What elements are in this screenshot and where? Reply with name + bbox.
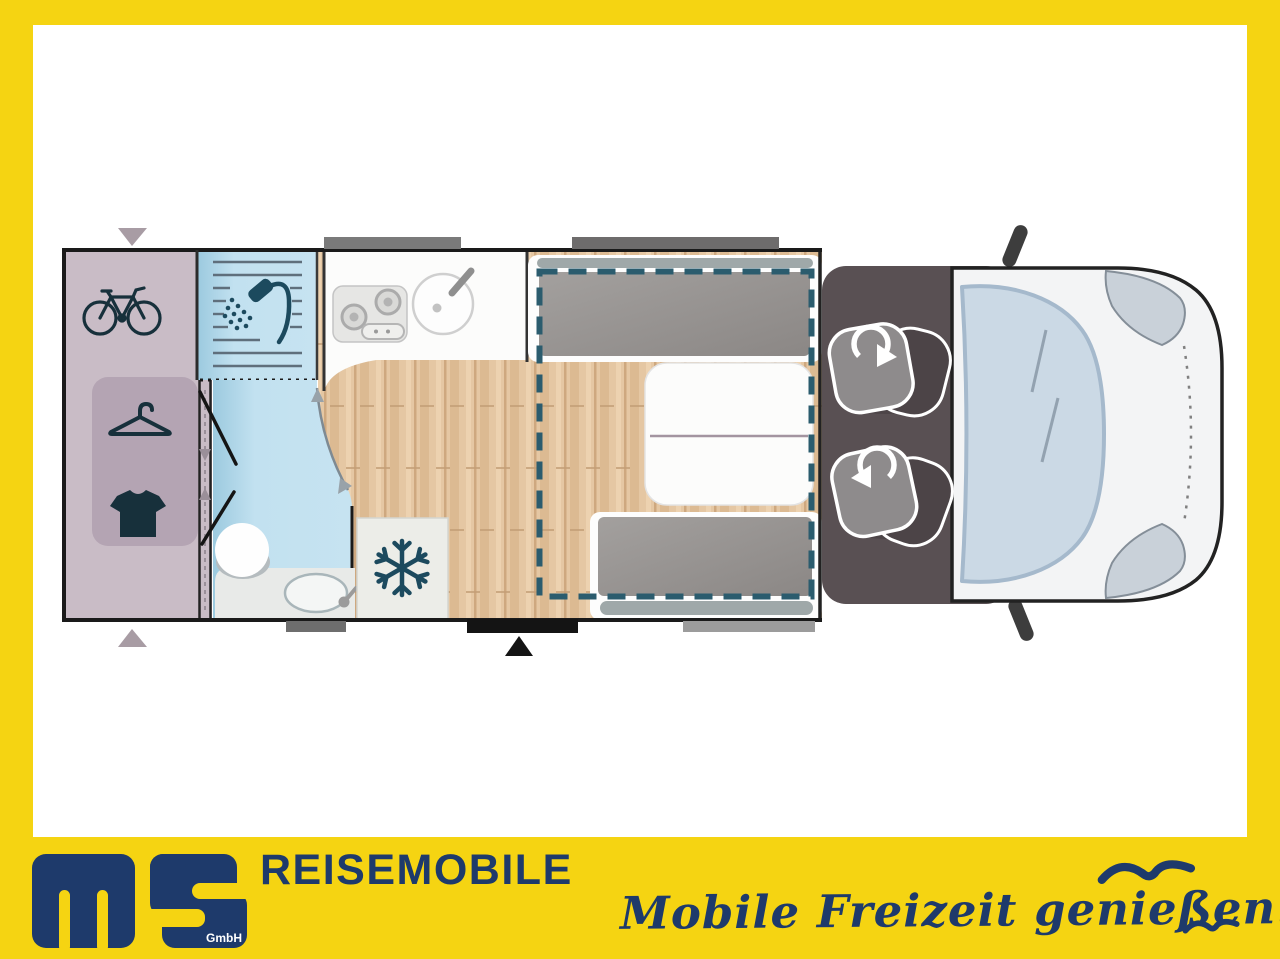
logo-s: GmbH (143, 854, 252, 948)
toilet-icon (215, 523, 269, 577)
table (645, 363, 813, 505)
side-mirror-top-icon (1000, 223, 1029, 269)
entry-door (467, 619, 578, 656)
seat-cushion (825, 320, 916, 416)
windshield (962, 286, 1104, 582)
birds (1090, 845, 1260, 945)
garage-door-arrow-bottom-icon (118, 629, 147, 647)
window-bathroom (286, 621, 346, 632)
garage-bath-partition (198, 380, 212, 620)
side-mirror-bottom-icon (1006, 597, 1035, 643)
floorplan (0, 0, 1280, 959)
garage-door-arrow-top-icon (118, 228, 147, 246)
ms-logo: GmbH (30, 852, 252, 954)
rear-garage (64, 250, 198, 620)
company-name: REISEMOBILE (260, 849, 573, 892)
logo-m (32, 854, 135, 952)
bird-icon (1185, 922, 1236, 931)
gmbh-label: GmbH (206, 931, 242, 945)
vehicle-front (952, 223, 1222, 643)
entry-arrow-icon (505, 636, 533, 656)
window-dinette (572, 237, 779, 249)
shower (198, 250, 318, 380)
window-kitchen (324, 237, 461, 249)
bird-icon (1102, 864, 1191, 880)
stove-icon (333, 286, 407, 342)
window-bench (683, 621, 815, 632)
washbasin-icon (285, 574, 347, 612)
swivel-seat-left (825, 320, 956, 422)
fridge (357, 518, 448, 620)
seat-cushion (827, 443, 921, 541)
